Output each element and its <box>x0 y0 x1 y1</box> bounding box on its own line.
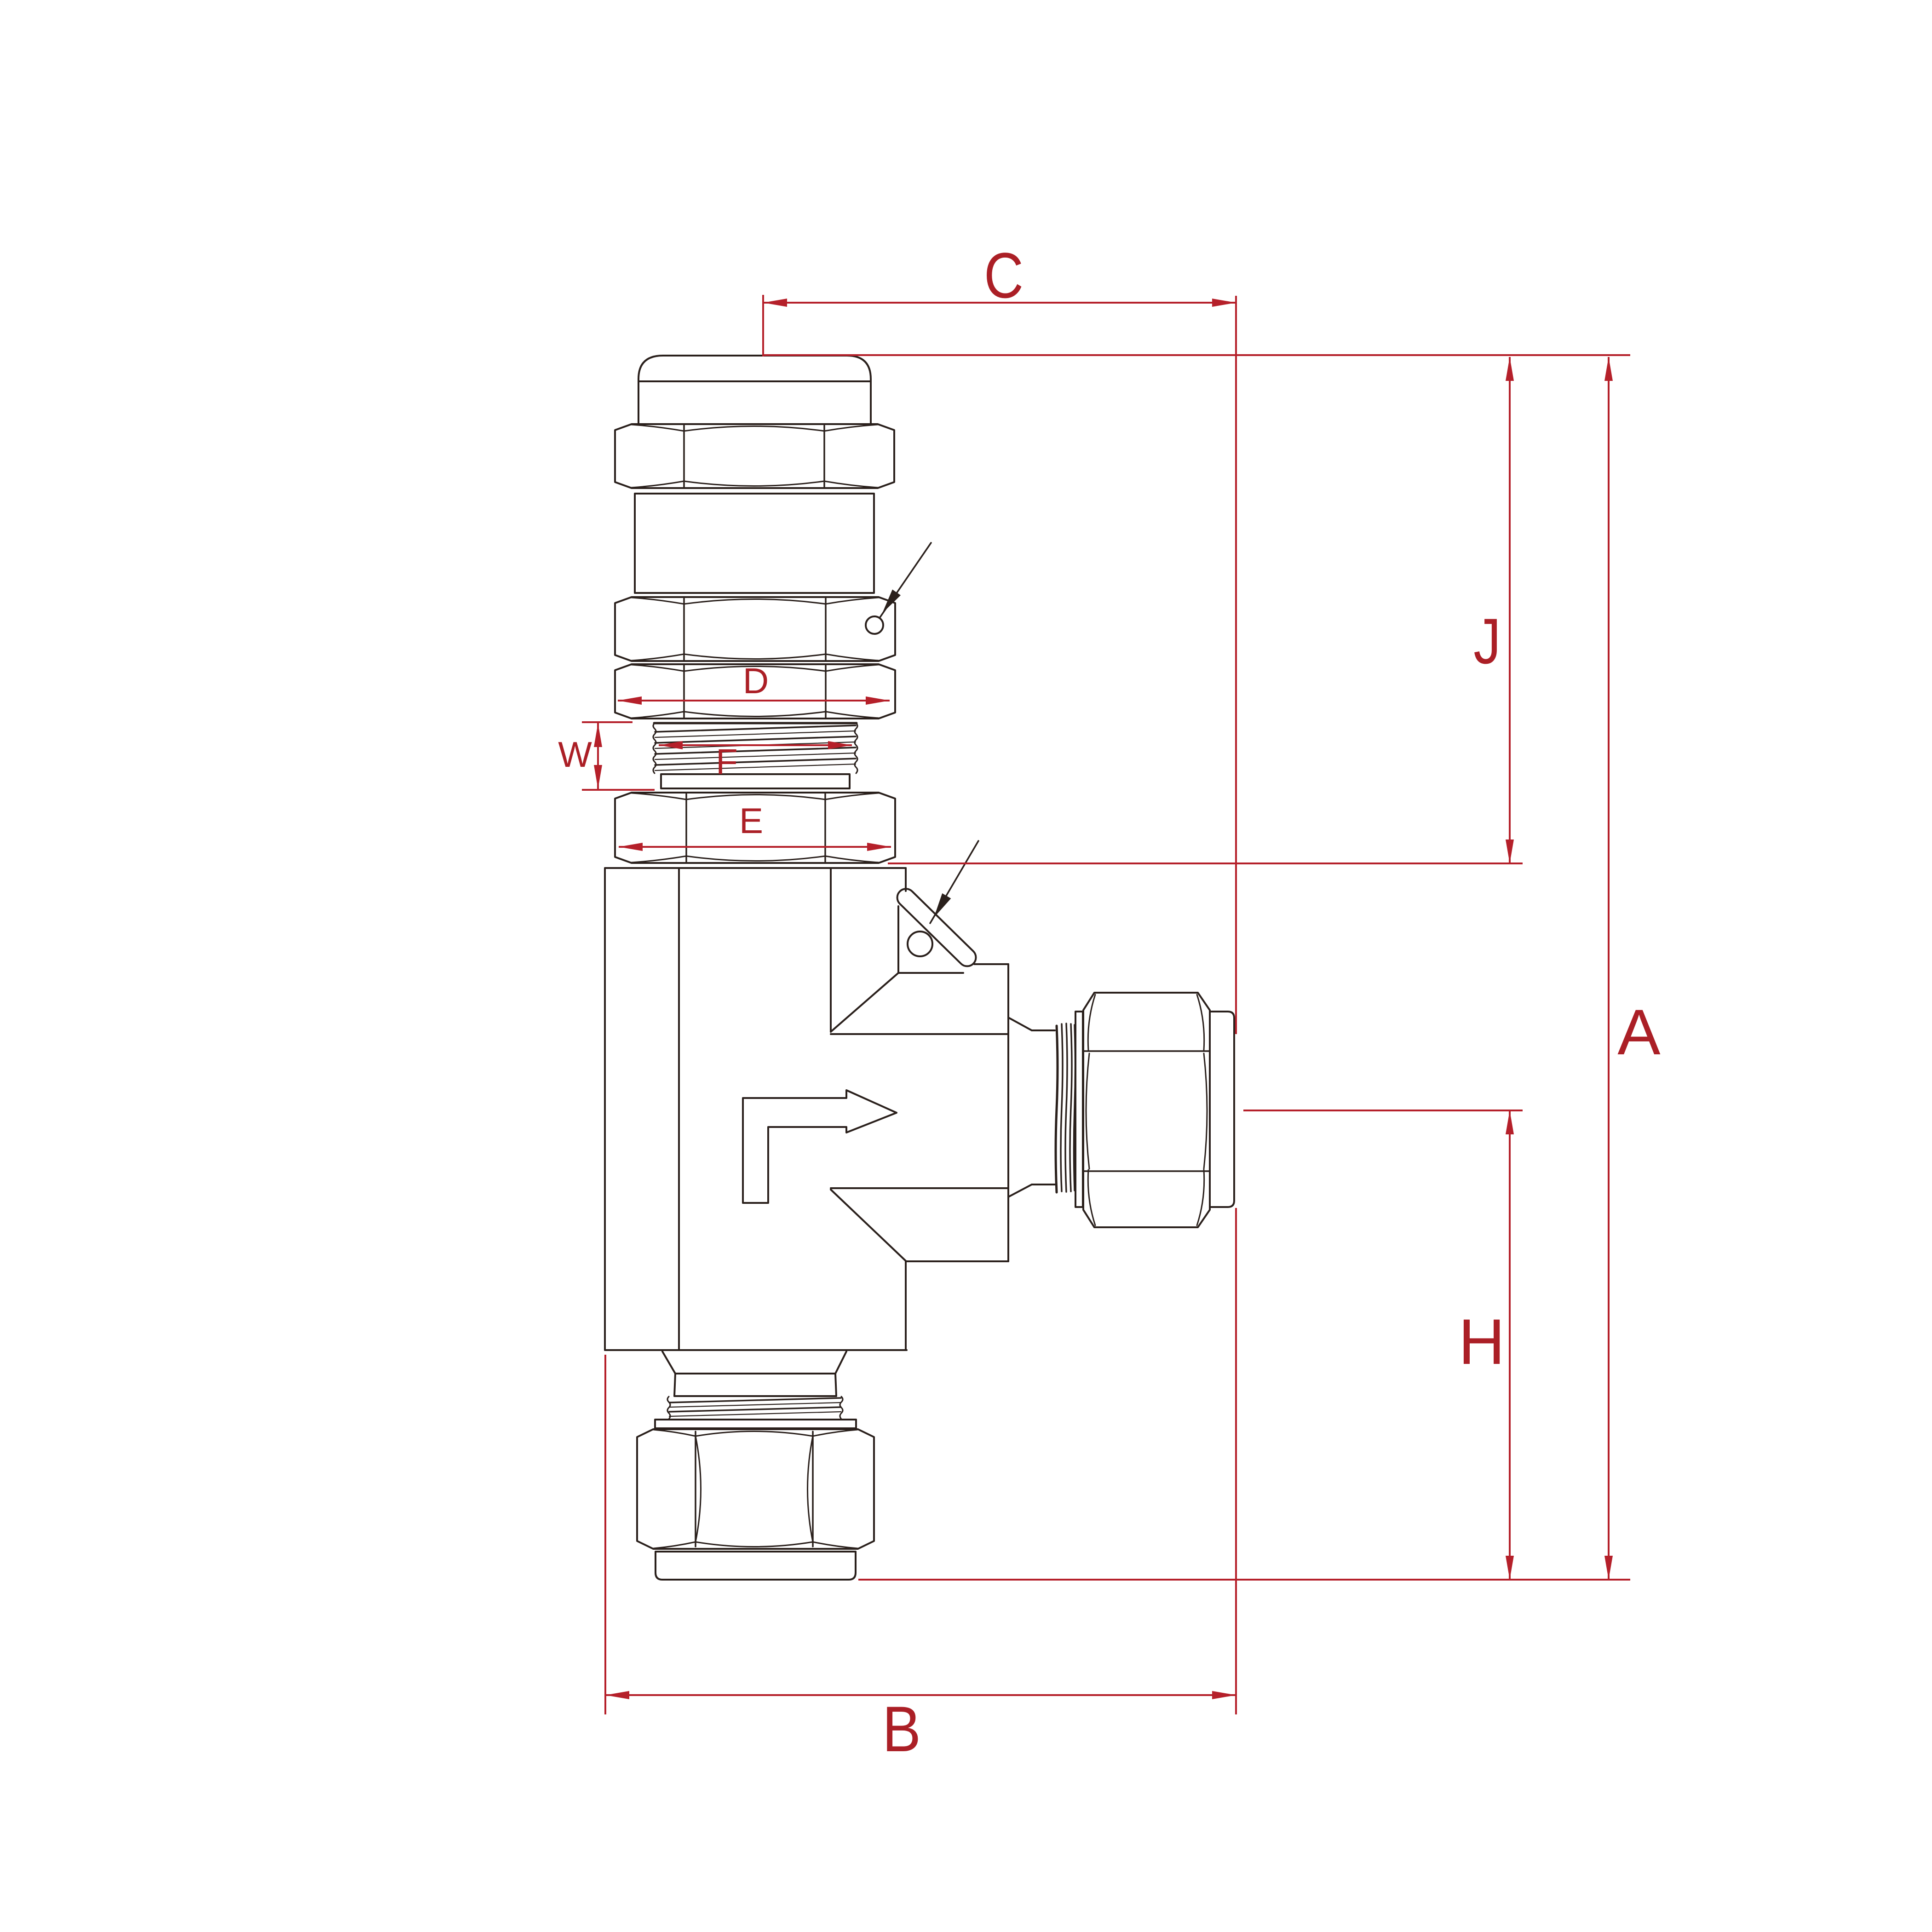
svg-text:C: C <box>984 239 1023 311</box>
svg-text:E: E <box>739 800 763 841</box>
svg-text:B: B <box>882 1693 921 1765</box>
svg-text:H: H <box>1458 1305 1505 1378</box>
svg-text:A: A <box>1617 996 1661 1068</box>
svg-text:W: W <box>558 734 592 775</box>
svg-text:J: J <box>1473 605 1501 677</box>
svg-text:D: D <box>743 661 769 701</box>
svg-text:F: F <box>716 742 738 782</box>
